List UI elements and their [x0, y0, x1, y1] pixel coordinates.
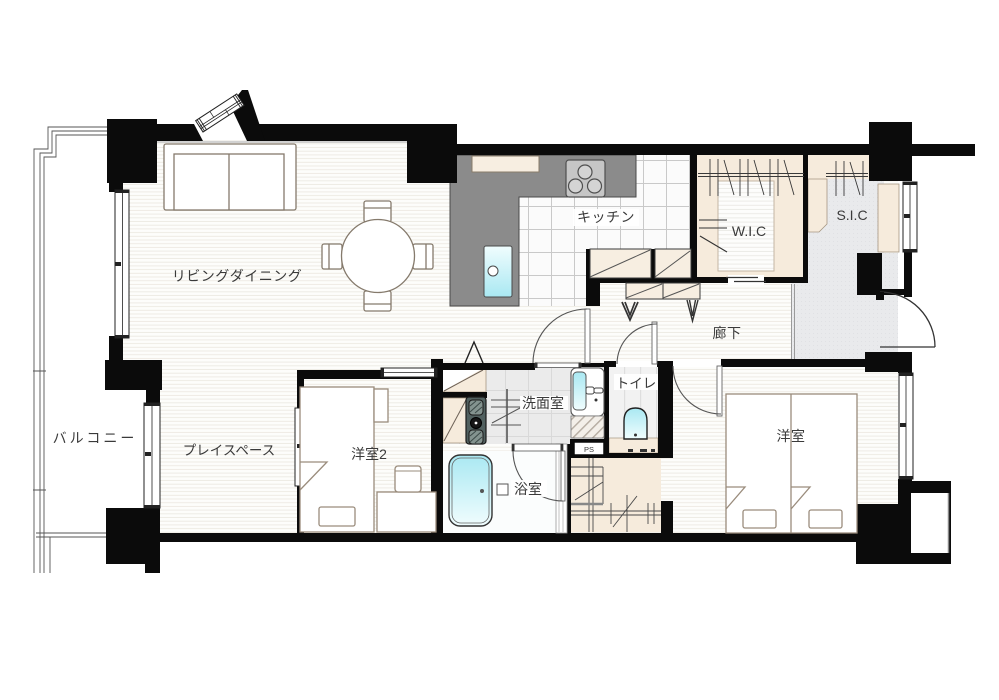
svg-text:W.I.C: W.I.C [732, 223, 766, 239]
svg-text:廊下: 廊下 [713, 325, 742, 341]
svg-text:トイレ: トイレ [616, 376, 657, 391]
svg-text:プレイスペース: プレイスペース [183, 443, 275, 458]
svg-text:リビングダイニング: リビングダイニング [172, 268, 303, 284]
svg-text:S.I.C: S.I.C [836, 207, 867, 223]
svg-text:洋室2: 洋室2 [351, 446, 387, 462]
svg-text:PS: PS [584, 445, 594, 454]
svg-text:洋室: 洋室 [777, 428, 806, 444]
svg-text:キッチン: キッチン [577, 209, 635, 225]
svg-text:洗面室: 洗面室 [522, 395, 564, 411]
svg-text:浴室: 浴室 [514, 481, 542, 497]
svg-text:バルコニー: バルコニー [53, 430, 138, 446]
